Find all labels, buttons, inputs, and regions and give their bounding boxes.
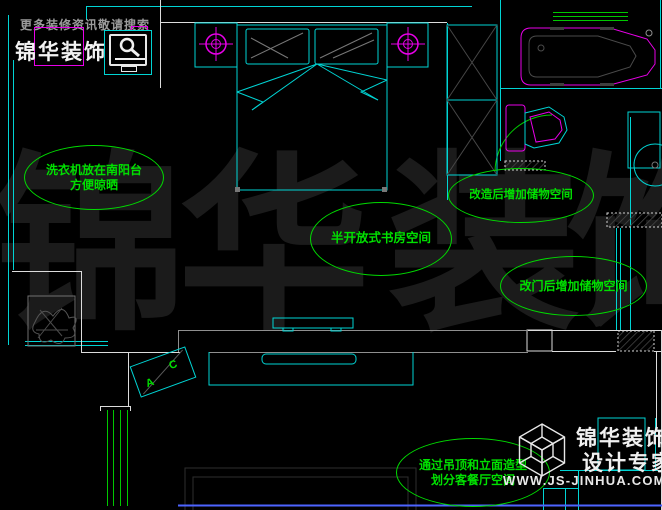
bathtub — [521, 27, 655, 86]
annotation-storage-remodel: 改造后增加储物空间 — [448, 168, 594, 223]
bed — [195, 23, 428, 190]
ac-letter-c: C — [167, 358, 179, 372]
search-icon — [104, 30, 152, 75]
annotation-text: 方便晾晒 — [70, 178, 118, 193]
annotation-storage-door: 改门后增加储物空间 — [500, 256, 647, 316]
shower — [628, 112, 660, 168]
window-bath — [553, 13, 628, 21]
washbasin — [634, 144, 662, 186]
magnifier-icon — [111, 36, 149, 62]
plant — [28, 296, 76, 346]
top-brand-name: 锦华装饰 — [15, 36, 107, 66]
ceiling-light-right — [391, 27, 425, 61]
annotation-text: 改造后增加储物空间 — [469, 188, 573, 202]
ceiling-light-left — [199, 27, 233, 61]
cube-logo-icon — [514, 422, 570, 478]
walls-gray — [178, 330, 528, 353]
search-button-bar — [121, 66, 137, 72]
tv-unit — [209, 318, 413, 385]
search-window — [109, 34, 147, 66]
bottom-logo: 锦华装饰 设计专家 WWW.JS-JINHUA.COM — [500, 418, 662, 493]
bottom-brand-url: WWW.JS-JINHUA.COM — [503, 473, 662, 488]
bed-outline — [237, 25, 387, 190]
window-balcony — [108, 410, 128, 506]
annotation-study: 半开放式书房空间 — [310, 202, 452, 276]
pillow-creases — [251, 33, 374, 58]
annotation-text: 半开放式书房空间 — [331, 231, 431, 247]
ac-letter-a: A — [144, 376, 156, 390]
blanket-folds — [237, 64, 387, 110]
ac-unit: A C — [130, 347, 195, 397]
wardrobe — [447, 25, 497, 175]
annotation-text: 洗衣机放在南阳台 — [46, 163, 142, 178]
floorplan-canvas: 锦 华 装 饰 — [0, 0, 662, 510]
annotation-text: 改门后增加储物空间 — [519, 279, 627, 294]
annotation-laundry: 洗衣机放在南阳台 方便晾晒 — [24, 145, 164, 210]
cabinet-outline — [209, 352, 413, 385]
dining-table — [185, 468, 416, 510]
